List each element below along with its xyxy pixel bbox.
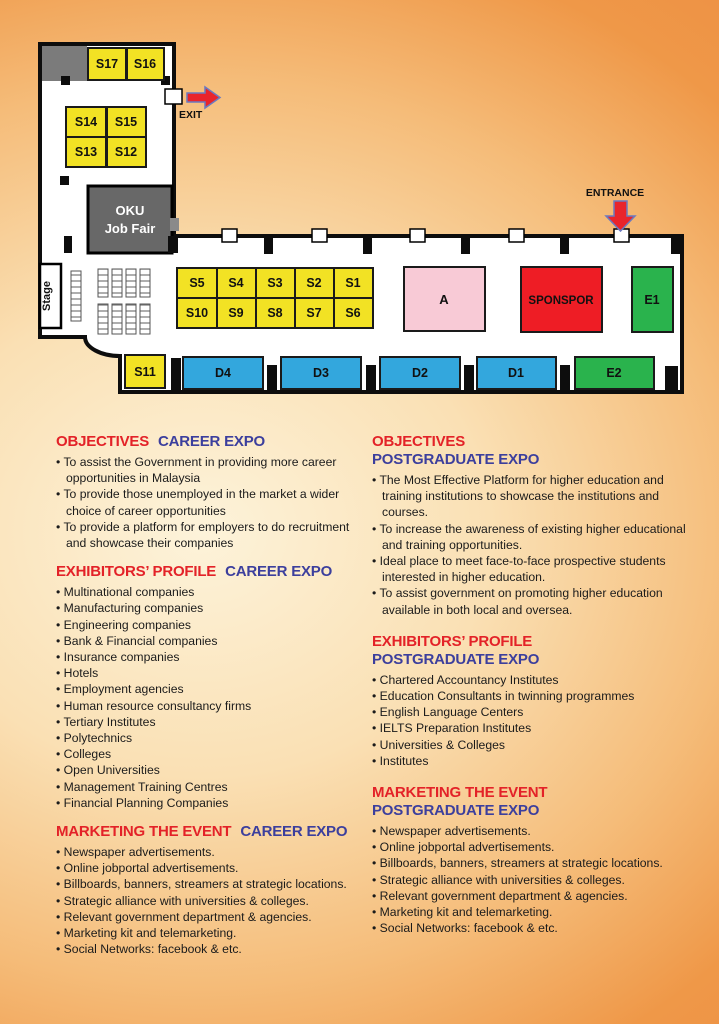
- bullet-item: Engineering companies: [56, 617, 370, 633]
- bullet-item: Colleges: [56, 746, 370, 762]
- heading-red-part: EXHIBITORS’ PROFILE: [56, 563, 216, 580]
- gray-corner-block: [42, 46, 87, 81]
- bullet-item: Newspaper advertisements.: [56, 844, 370, 860]
- bullet-item: Tertiary Institutes: [56, 714, 370, 730]
- booth-s2-label: S2: [306, 276, 321, 290]
- heading-red-part: OBJECTIVES: [372, 433, 703, 451]
- bullet-item: Newspaper advertisements.: [372, 823, 703, 839]
- booth-s17-label: S17: [96, 57, 118, 71]
- booth-d4-label: D4: [215, 366, 231, 380]
- bullet-list: Multinational companiesManufacturing com…: [56, 584, 370, 811]
- booth-s16-label: S16: [134, 57, 156, 71]
- bullet-item: Strategic alliance with universities & c…: [372, 872, 703, 888]
- flyer-page: OKU Job Fair Stage: [0, 0, 719, 1024]
- bullet-item: Online jobportal advertisements.: [372, 839, 703, 855]
- bullet-item: To assist the Government in providing mo…: [56, 454, 370, 486]
- door-markers: [165, 89, 629, 242]
- section-heading: MARKETING THE EVENT POSTGRADUATE EXPO: [372, 784, 703, 820]
- booth-s14-label: S14: [75, 115, 97, 129]
- exit-arrow-icon: [187, 87, 220, 108]
- exit-label: EXIT: [179, 109, 203, 121]
- heading-red-part: MARKETING THE EVENT: [56, 823, 231, 840]
- heading-red-part: OBJECTIVES: [56, 433, 149, 450]
- booth-d3-label: D3: [313, 366, 329, 380]
- bullet-list: Newspaper advertisements.Online jobporta…: [372, 823, 703, 936]
- bullet-item: Relevant government department & agencie…: [56, 909, 370, 925]
- bullet-item: Social Networks: facebook & etc.: [56, 941, 370, 957]
- section-exhibitors-postgraduate: EXHIBITORS’ PROFILE POSTGRADUATE EXPO Ch…: [372, 633, 703, 769]
- bullet-item: Manufacturing companies: [56, 600, 370, 616]
- oku-job-fair-area: OKU Job Fair: [88, 186, 172, 253]
- booth-a-label: A: [439, 292, 449, 307]
- bullet-item: Social Networks: facebook & etc.: [372, 920, 703, 936]
- bullet-list: Newspaper advertisements.Online jobporta…: [56, 844, 370, 957]
- section-objectives-postgraduate: OBJECTIVES POSTGRADUATE EXPO The Most Ef…: [372, 433, 703, 618]
- heading-red-part: MARKETING THE EVENT: [372, 784, 703, 802]
- bullet-item: Marketing kit and telemarketing.: [56, 925, 370, 941]
- booth-s12-label: S12: [115, 145, 137, 159]
- booth-s3-label: S3: [267, 276, 282, 290]
- booth-sponsor-label: SPONSPOR: [528, 295, 594, 307]
- bullet-item: To provide a platform for employers to d…: [56, 519, 370, 551]
- heading-blue-part: POSTGRADUATE EXPO: [372, 802, 703, 820]
- booth-e1-label: E1: [644, 293, 659, 307]
- heading-blue-part: POSTGRADUATE EXPO: [372, 651, 703, 669]
- booth-s13-label: S13: [75, 145, 97, 159]
- postgraduate-expo-column: OBJECTIVES POSTGRADUATE EXPO The Most Ef…: [372, 433, 703, 951]
- bullet-item: Education Consultants in twinning progra…: [372, 688, 703, 704]
- oku-label: OKU: [116, 203, 145, 218]
- bullet-item: Marketing kit and telemarketing.: [372, 904, 703, 920]
- bullet-item: Strategic alliance with universities & c…: [56, 893, 370, 909]
- heading-blue-part: CAREER EXPO: [158, 433, 265, 450]
- bullet-item: Insurance companies: [56, 649, 370, 665]
- bullet-item: To increase the awareness of existing hi…: [372, 521, 703, 553]
- heading-blue-part: CAREER EXPO: [240, 823, 347, 840]
- booth-s9-label: S9: [228, 306, 243, 320]
- booth-s5-label: S5: [189, 276, 204, 290]
- stage-label: Stage: [41, 281, 53, 311]
- booth-s8-label: S8: [267, 306, 282, 320]
- career-expo-column: OBJECTIVES CAREER EXPO To assist the Gov…: [56, 433, 370, 969]
- booth-s1-label: S1: [345, 276, 360, 290]
- booth-s10-label: S10: [186, 306, 208, 320]
- booth-e2-label: E2: [606, 366, 621, 380]
- bullet-item: Billboards, banners, streamers at strate…: [56, 876, 370, 892]
- bullet-item: Financial Planning Companies: [56, 795, 370, 811]
- bullet-item: The Most Effective Platform for higher e…: [372, 472, 703, 521]
- booth-s11-label: S11: [134, 365, 156, 379]
- bullet-item: Bank & Financial companies: [56, 633, 370, 649]
- section-objectives-career: OBJECTIVES CAREER EXPO To assist the Gov…: [56, 433, 370, 551]
- oku-label-2: Job Fair: [105, 221, 156, 236]
- bullet-item: Management Training Centres: [56, 779, 370, 795]
- booth-s6-label: S6: [345, 306, 360, 320]
- bullet-item: Hotels: [56, 665, 370, 681]
- bullet-item: Relevant government department & agencie…: [372, 888, 703, 904]
- heading-red-part: EXHIBITORS’ PROFILE: [372, 633, 703, 651]
- bullet-item: Open Universities: [56, 762, 370, 778]
- heading-blue-part: CAREER EXPO: [225, 563, 332, 580]
- entrance-label: ENTRANCE: [586, 187, 644, 199]
- bullet-item: To provide those unemployed in the marke…: [56, 486, 370, 518]
- booth-s4-label: S4: [228, 276, 243, 290]
- booth-s7-label: S7: [306, 306, 321, 320]
- bullet-item: Polytechnics: [56, 730, 370, 746]
- bullet-item: Ideal place to meet face-to-face prospec…: [372, 553, 703, 585]
- bullet-item: Multinational companies: [56, 584, 370, 600]
- bullet-item: English Language Centers: [372, 704, 703, 720]
- bullet-item: Chartered Accountancy Institutes: [372, 672, 703, 688]
- booth-d1-label: D1: [508, 366, 524, 380]
- bullet-list: The Most Effective Platform for higher e…: [372, 472, 703, 618]
- bullet-item: Human resource consultancy firms: [56, 698, 370, 714]
- bullet-item: Billboards, banners, streamers at strate…: [372, 855, 703, 871]
- section-marketing-postgraduate: MARKETING THE EVENT POSTGRADUATE EXPO Ne…: [372, 784, 703, 936]
- bullet-item: IELTS Preparation Institutes: [372, 720, 703, 736]
- bullet-item: To assist government on promoting higher…: [372, 585, 703, 617]
- section-heading: EXHIBITORS’ PROFILE CAREER EXPO: [56, 563, 370, 581]
- bullet-item: Employment agencies: [56, 681, 370, 697]
- booth-d2-label: D2: [412, 366, 428, 380]
- section-heading: OBJECTIVES POSTGRADUATE EXPO: [372, 433, 703, 469]
- section-heading: OBJECTIVES CAREER EXPO: [56, 433, 370, 451]
- floorplan: OKU Job Fair Stage: [0, 0, 719, 415]
- bullet-item: Universities & Colleges: [372, 737, 703, 753]
- heading-blue-part: POSTGRADUATE EXPO: [372, 451, 703, 469]
- bullet-list: To assist the Government in providing mo…: [56, 454, 370, 551]
- section-exhibitors-career: EXHIBITORS’ PROFILE CAREER EXPO Multinat…: [56, 563, 370, 811]
- section-marketing-career: MARKETING THE EVENT CAREER EXPO Newspape…: [56, 823, 370, 957]
- entrance-arrow-icon: [606, 201, 635, 231]
- bullet-list: Chartered Accountancy InstitutesEducatio…: [372, 672, 703, 769]
- section-heading: EXHIBITORS’ PROFILE POSTGRADUATE EXPO: [372, 633, 703, 669]
- side-door-marker: [170, 218, 179, 231]
- bullet-item: Online jobportal advertisements.: [56, 860, 370, 876]
- booth-s15-label: S15: [115, 115, 137, 129]
- section-heading: MARKETING THE EVENT CAREER EXPO: [56, 823, 370, 841]
- bullet-item: Institutes: [372, 753, 703, 769]
- stage-area: Stage: [40, 264, 61, 328]
